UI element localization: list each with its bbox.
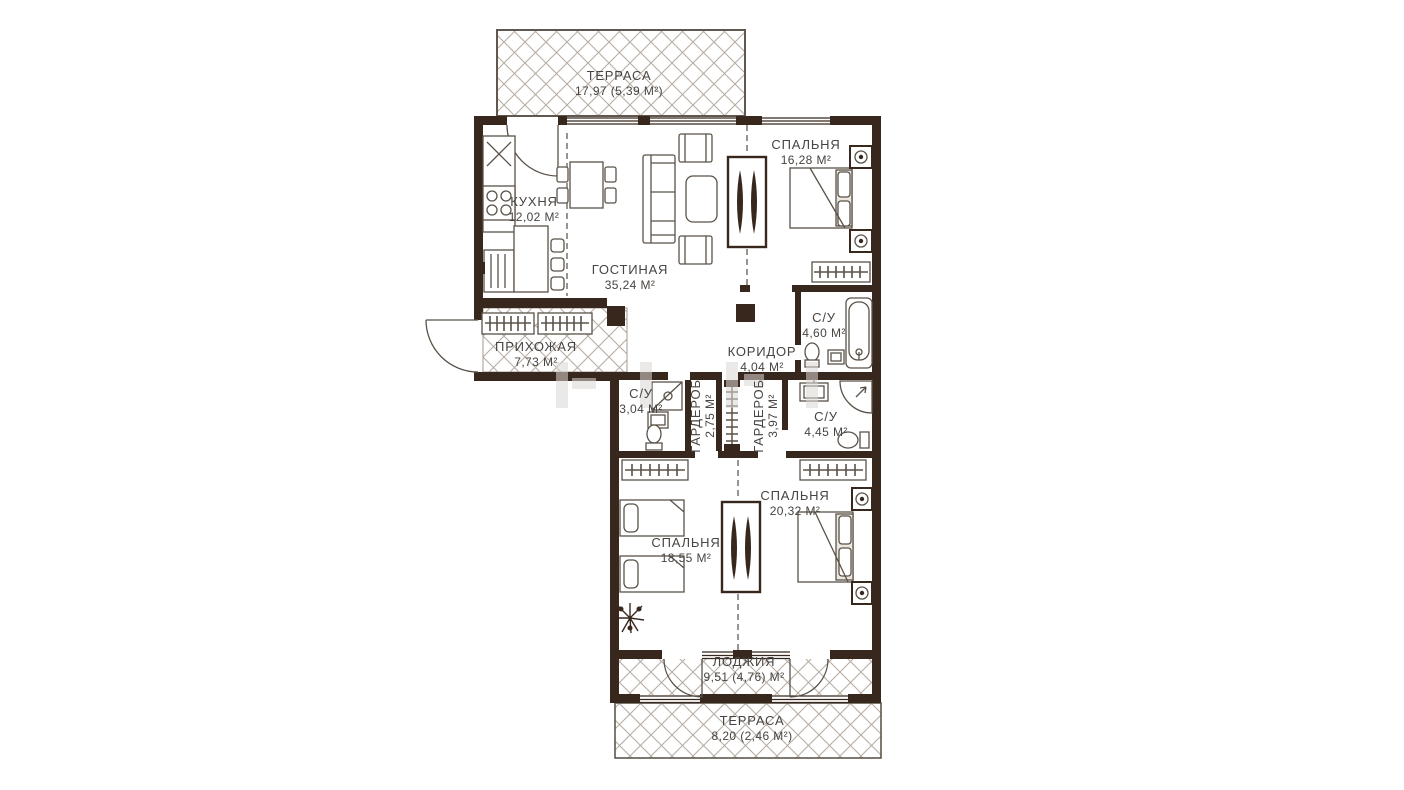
nightstand-lamps-2 <box>852 488 872 604</box>
svg-text:ГАРДЕРОБ: ГАРДЕРОБ <box>688 379 703 453</box>
svg-text:8,20 (2,46 М²): 8,20 (2,46 М²) <box>712 729 793 743</box>
sofa <box>643 155 675 243</box>
svg-text:ГАРДЕРОБ: ГАРДЕРОБ <box>751 379 766 453</box>
svg-text:12,02 М²: 12,02 М² <box>509 210 560 224</box>
svg-text:ТЕРРАСА: ТЕРРАСА <box>720 713 785 728</box>
svg-text:СПАЛЬНЯ: СПАЛЬНЯ <box>760 488 829 503</box>
fridge <box>479 250 514 292</box>
corner-shower <box>840 381 872 413</box>
dining-table <box>557 162 616 208</box>
bar-stools <box>551 239 564 290</box>
svg-text:3,97 М²: 3,97 М² <box>766 394 780 437</box>
toilet-2 <box>646 425 662 450</box>
coffee-table <box>686 176 717 222</box>
room-label-bedroom-2: СПАЛЬНЯ 20,32 М² <box>760 488 829 518</box>
wardrobe-unit-bedroom-2 <box>722 502 760 592</box>
svg-text:3,04 М²: 3,04 М² <box>619 402 662 416</box>
washbasin-1 <box>828 350 844 364</box>
kitchen-peninsula <box>514 226 548 292</box>
svg-text:ТЕРРАСА: ТЕРРАСА <box>587 68 652 83</box>
svg-text:2,75 М²: 2,75 М² <box>703 394 717 437</box>
svg-text:35,24 М²: 35,24 М² <box>605 278 656 292</box>
svg-text:КОРИДОР: КОРИДОР <box>728 344 797 359</box>
double-bed-2 <box>798 512 853 582</box>
svg-text:ГОСТИНАЯ: ГОСТИНАЯ <box>592 262 669 277</box>
svg-text:17,97 (5,39 М²): 17,97 (5,39 М²) <box>575 84 663 98</box>
wardrobe-unit-living <box>728 157 766 247</box>
floorplan-page: ТЕРРАСА 17,97 (5,39 М²) СПАЛЬНЯ 16,28 М²… <box>0 0 1404 790</box>
armchair-bottom <box>679 236 712 264</box>
svg-text:СПАЛЬНЯ: СПАЛЬНЯ <box>651 535 720 550</box>
room-label-bathroom-1: С/У 4,60 М² <box>802 310 845 340</box>
room-label-wardrobe-2: ГАРДЕРОБ 3,97 М² <box>751 379 780 453</box>
room-label-bathroom-3: С/У 4,45 М² <box>804 409 847 439</box>
room-label-living-room: ГОСТИНАЯ 35,24 М² <box>592 262 669 292</box>
single-bed-1 <box>620 500 684 536</box>
room-label-bedroom-1: СПАЛЬНЯ 16,28 М² <box>771 137 840 167</box>
closet-bedroom-1 <box>812 262 870 282</box>
svg-text:4,60 М²: 4,60 М² <box>802 326 845 340</box>
svg-text:СПАЛЬНЯ: СПАЛЬНЯ <box>771 137 840 152</box>
nightstand-lamps-1 <box>850 146 872 252</box>
floorplan-drawing: ТЕРРАСА 17,97 (5,39 М²) СПАЛЬНЯ 16,28 М²… <box>0 0 1404 790</box>
bathtub <box>846 298 872 368</box>
coat-rack-1 <box>482 313 534 334</box>
svg-text:4,45 М²: 4,45 М² <box>804 425 847 439</box>
svg-text:7,73 М²: 7,73 М² <box>514 355 557 369</box>
svg-text:9,51 (4,76) М²: 9,51 (4,76) М² <box>704 670 785 684</box>
armchair-top <box>679 134 712 162</box>
room-label-wardrobe-1: ГАРДЕРОБ 2,75 М² <box>688 379 717 453</box>
closet-bedroom-2 <box>800 460 866 480</box>
svg-text:С/У: С/У <box>812 310 836 325</box>
svg-text:ЛОДЖИЯ: ЛОДЖИЯ <box>713 654 776 669</box>
svg-text:18,55 М²: 18,55 М² <box>661 551 712 565</box>
svg-text:С/У: С/У <box>814 409 838 424</box>
double-bed-1 <box>790 168 852 228</box>
room-label-kitchen: КУХНЯ 12,02 М² <box>509 194 560 224</box>
svg-text:С/У: С/У <box>629 386 653 401</box>
svg-text:ПРИХОЖАЯ: ПРИХОЖАЯ <box>495 339 577 354</box>
room-label-bedroom-3: СПАЛЬНЯ 18,55 М² <box>651 535 720 565</box>
plant <box>616 603 644 633</box>
closet-bedroom-3 <box>622 460 688 480</box>
svg-text:16,28 М²: 16,28 М² <box>781 153 832 167</box>
coat-rack-2 <box>538 313 592 334</box>
svg-text:20,32 М²: 20,32 М² <box>770 504 821 518</box>
svg-text:4,04 М²: 4,04 М² <box>740 360 783 374</box>
svg-text:КУХНЯ: КУХНЯ <box>510 194 557 209</box>
